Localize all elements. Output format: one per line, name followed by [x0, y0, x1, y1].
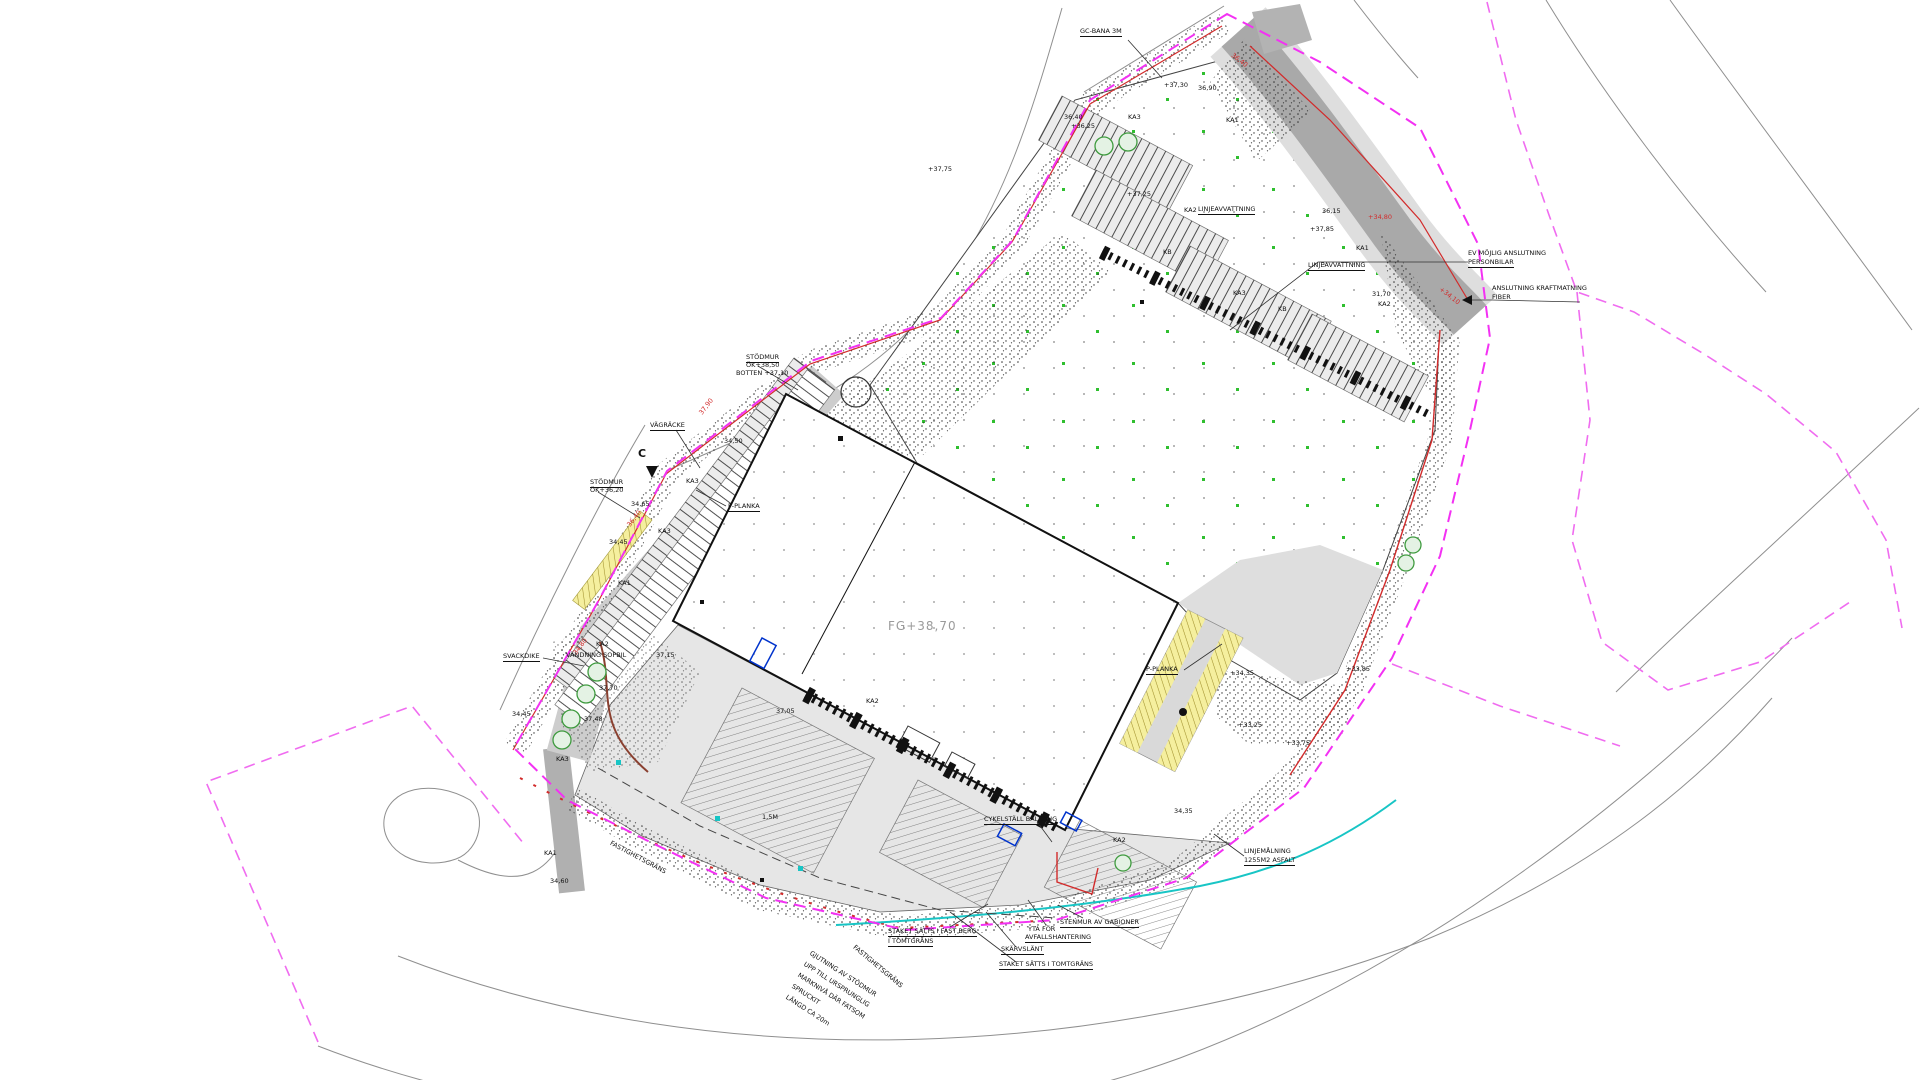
site-plan-drawing: [0, 0, 1920, 1080]
stormwater-well: [841, 377, 871, 407]
site-plan-canvas: FG+38,70 C GC-BANA 3MLINJEAVVATTNINGLINJ…: [0, 0, 1920, 1080]
